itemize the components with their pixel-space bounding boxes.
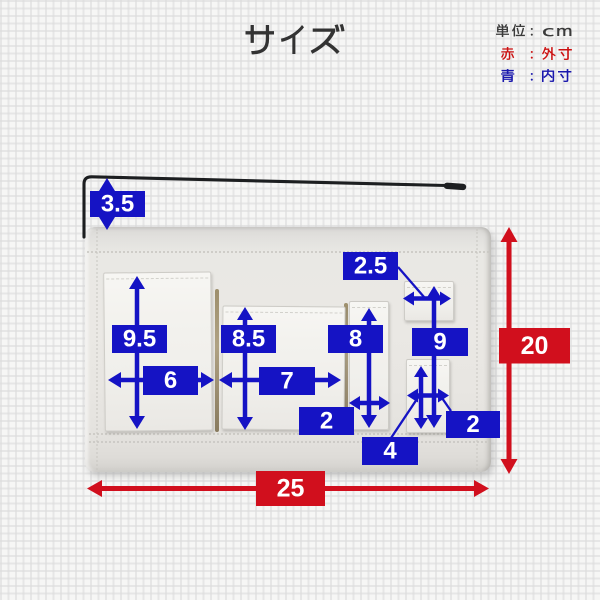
svg-text:2: 2 [466, 411, 479, 438]
svg-text:4: 4 [383, 438, 397, 465]
svg-text:9.5: 9.5 [123, 326, 156, 353]
svg-text:8: 8 [349, 326, 362, 353]
svg-text:8.5: 8.5 [232, 326, 265, 353]
svg-text:2.5: 2.5 [354, 253, 387, 280]
svg-text:25: 25 [277, 475, 305, 503]
svg-text:2: 2 [320, 408, 333, 435]
svg-text:3.5: 3.5 [101, 191, 134, 218]
svg-text:7: 7 [280, 368, 293, 395]
svg-text:20: 20 [521, 332, 549, 360]
svg-text:9: 9 [433, 329, 446, 356]
svg-text:6: 6 [164, 367, 177, 394]
